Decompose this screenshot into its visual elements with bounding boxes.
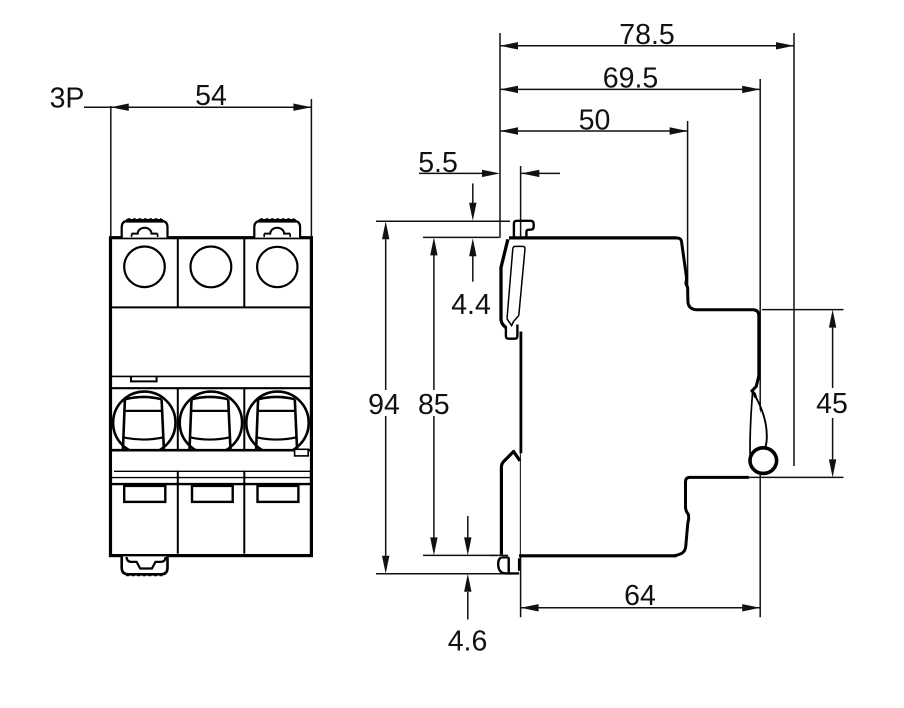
svg-text:50: 50	[579, 104, 611, 136]
svg-text:54: 54	[195, 80, 227, 112]
svg-text:45: 45	[816, 388, 848, 420]
svg-text:69.5: 69.5	[603, 63, 658, 95]
svg-text:94: 94	[368, 389, 400, 421]
svg-text:4.4: 4.4	[451, 289, 491, 321]
svg-text:64: 64	[624, 580, 656, 612]
svg-text:85: 85	[418, 389, 450, 421]
svg-text:3P: 3P	[50, 83, 85, 115]
svg-text:4.6: 4.6	[448, 626, 488, 658]
svg-text:78.5: 78.5	[619, 19, 674, 51]
svg-text:5.5: 5.5	[418, 147, 458, 179]
